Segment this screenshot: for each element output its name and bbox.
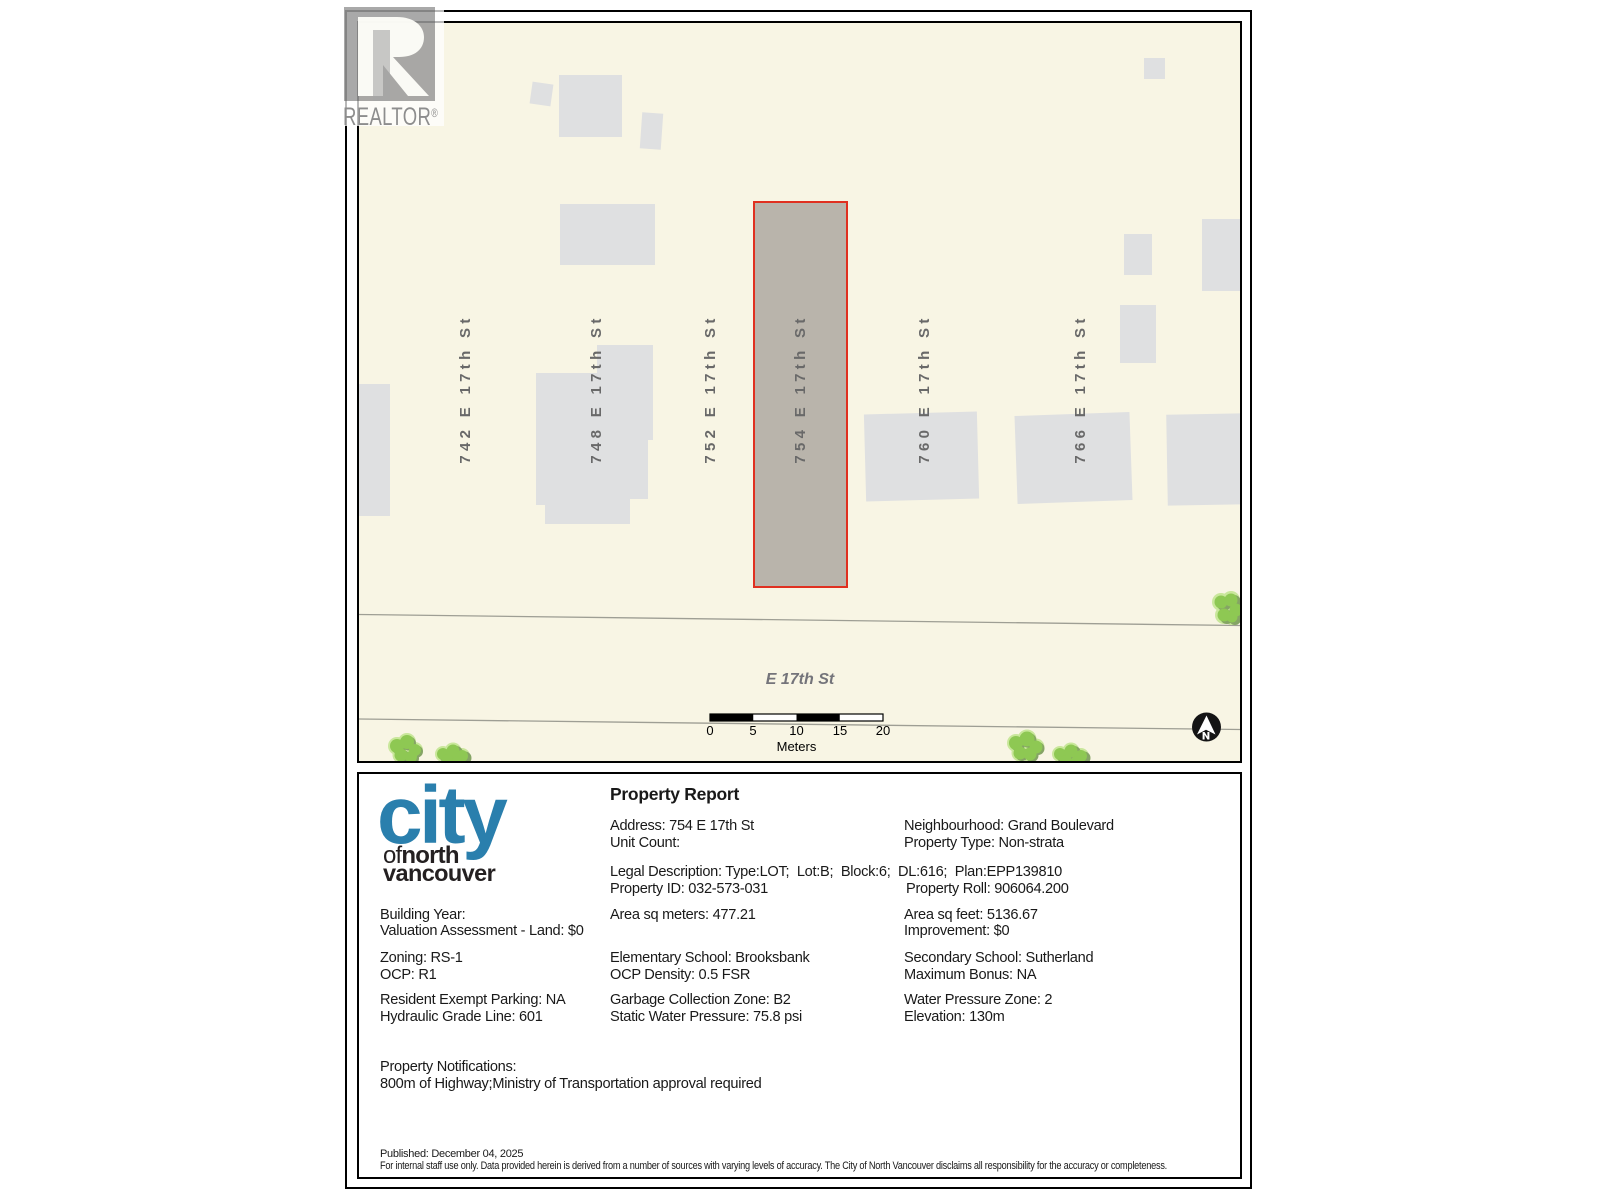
svg-text:754 E 17th St: 754 E 17th St — [792, 314, 809, 463]
svg-text:766 E 17th St: 766 E 17th St — [1072, 314, 1089, 463]
svg-text:0: 0 — [706, 723, 713, 738]
svg-text:Meters: Meters — [777, 739, 817, 754]
svg-text:15: 15 — [833, 723, 847, 738]
svg-text:742 E 17th St: 742 E 17th St — [457, 314, 474, 463]
svg-text:760 E 17th St: 760 E 17th St — [916, 314, 933, 463]
svg-text:E 17th St: E 17th St — [766, 671, 835, 688]
svg-text:748 E 17th St: 748 E 17th St — [588, 314, 605, 463]
svg-text:5: 5 — [749, 723, 756, 738]
svg-text:10: 10 — [789, 723, 803, 738]
svg-text:752 E 17th St: 752 E 17th St — [702, 314, 719, 463]
svg-text:20: 20 — [876, 723, 890, 738]
